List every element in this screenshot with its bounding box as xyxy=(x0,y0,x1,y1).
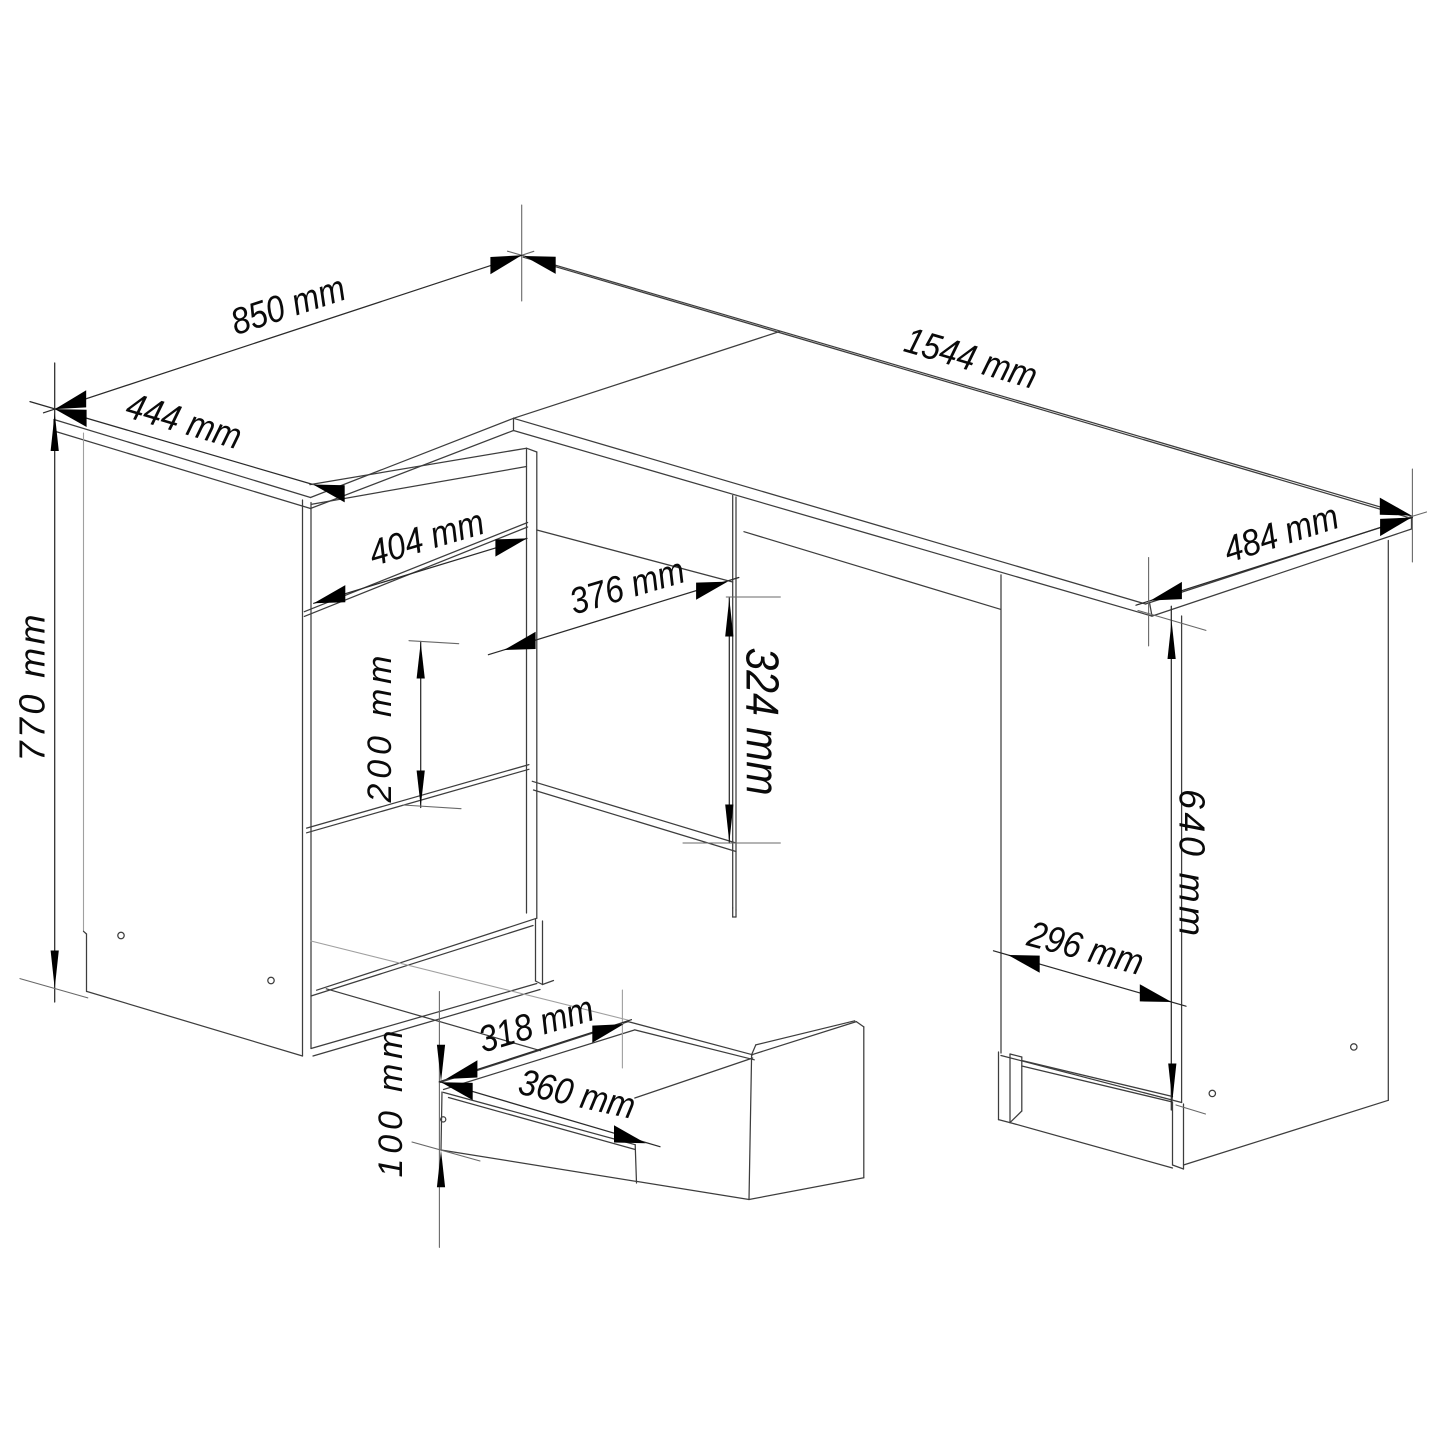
svg-text:324 mm: 324 mm xyxy=(737,648,789,796)
